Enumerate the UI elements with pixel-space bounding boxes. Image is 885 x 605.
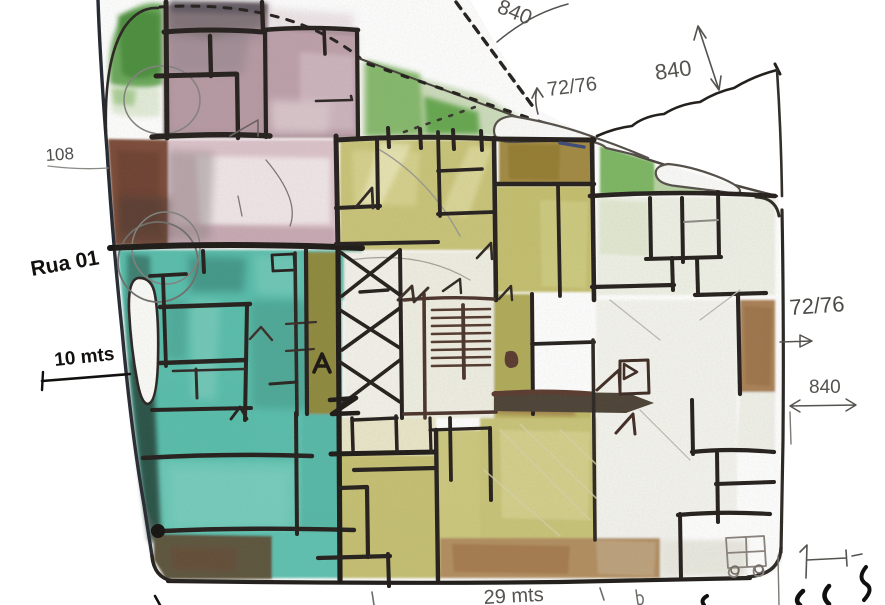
svg-text:840: 840 [809,377,841,398]
svg-text:840: 840 [653,55,693,85]
svg-text:108: 108 [45,144,75,165]
svg-text:72/76: 72/76 [789,291,846,320]
svg-text:29 mts: 29 mts [483,584,544,605]
